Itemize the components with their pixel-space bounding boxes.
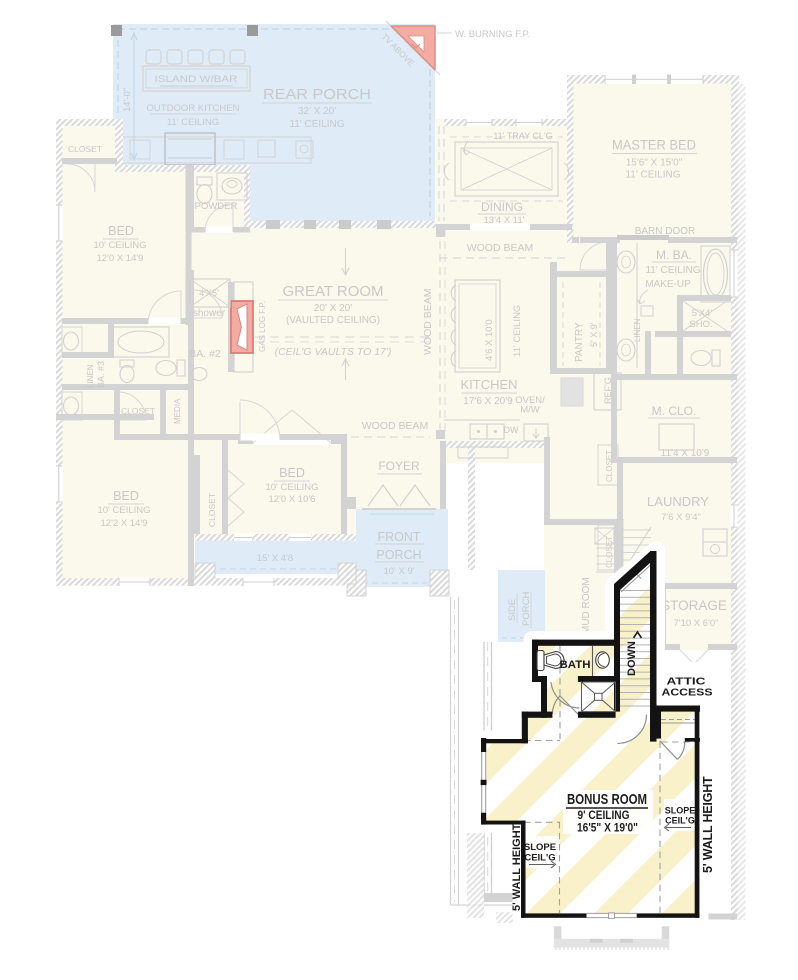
svg-text:BATH: BATH [560, 659, 591, 671]
svg-text:10' CEILING: 10' CEILING [265, 482, 318, 493]
svg-text:WOOD BEAM: WOOD BEAM [422, 288, 434, 355]
svg-text:ACCESS: ACCESS [662, 687, 713, 699]
svg-text:SHO.: SHO. [689, 319, 712, 330]
svg-text:PORCH: PORCH [376, 548, 421, 562]
svg-text:POWDER: POWDER [195, 201, 238, 212]
svg-text:M. CLO.: M. CLO. [652, 404, 697, 418]
svg-text:11' CEILING: 11' CEILING [167, 117, 219, 128]
svg-text:17'6 X 20'9: 17'6 X 20'9 [463, 396, 513, 407]
svg-text:15'6" X 15'0": 15'6" X 15'0" [626, 158, 683, 169]
svg-text:OUTDOOR KITCHEN: OUTDOOR KITCHEN [147, 103, 240, 114]
svg-text:ISLAND W/BAR: ISLAND W/BAR [155, 74, 239, 84]
svg-text:BED: BED [108, 224, 134, 238]
svg-text:CEIL'G: CEIL'G [665, 816, 695, 826]
svg-text:M/W: M/W [520, 405, 540, 416]
svg-text:MUD ROOM: MUD ROOM [581, 577, 592, 634]
svg-text:5' WALL HEIGHT: 5' WALL HEIGHT [701, 776, 715, 873]
svg-text:15' X 4'8: 15' X 4'8 [257, 553, 293, 564]
svg-text:LAUNDRY: LAUNDRY [647, 494, 709, 509]
svg-text:4'6 X 10'0: 4'6 X 10'0 [484, 319, 495, 361]
svg-text:10' CEILING: 10' CEILING [97, 505, 150, 516]
svg-text:BED: BED [279, 466, 305, 480]
svg-text:11' TRAY CL'G: 11' TRAY CL'G [493, 131, 552, 141]
svg-text:LINEN: LINEN [633, 318, 642, 342]
svg-text:SLOPE: SLOPE [665, 806, 696, 816]
svg-text:MEDIA: MEDIA [173, 398, 182, 424]
svg-text:12'2 X 14'9: 12'2 X 14'9 [101, 518, 148, 529]
svg-text:7'6 X 9'4": 7'6 X 9'4" [661, 512, 701, 523]
svg-text:13'4 X 11': 13'4 X 11' [484, 215, 525, 226]
svg-text:DOWN: DOWN [626, 641, 638, 676]
svg-text:FOYER: FOYER [378, 459, 420, 473]
svg-text:(VAULTED CEILING): (VAULTED CEILING) [286, 315, 380, 326]
svg-text:BA. #2: BA. #2 [189, 348, 221, 360]
svg-text:CLOSET: CLOSET [605, 450, 614, 482]
svg-text:W. BURNING F.P.: W. BURNING F.P. [455, 29, 530, 40]
svg-text:DINING: DINING [481, 200, 523, 214]
svg-text:11' CEILING: 11' CEILING [289, 119, 344, 130]
svg-text:STORAGE: STORAGE [661, 598, 727, 613]
svg-text:FRONT: FRONT [377, 530, 420, 544]
svg-text:4'X5': 4'X5' [199, 288, 219, 298]
svg-text:CLOSET: CLOSET [121, 406, 155, 416]
svg-text:CLOSET: CLOSET [207, 493, 217, 527]
svg-text:12'0 X 10'6: 12'0 X 10'6 [269, 494, 316, 505]
svg-text:SIDE: SIDE [507, 599, 518, 621]
svg-text:12'0 X 14'9: 12'0 X 14'9 [97, 253, 144, 264]
svg-text:PANTRY: PANTRY [574, 322, 585, 362]
svg-text:5' WALL HEIGHT: 5' WALL HEIGHT [511, 823, 523, 911]
svg-text:BONUS ROOM: BONUS ROOM [567, 791, 647, 808]
svg-text:10' X 9': 10' X 9' [383, 566, 414, 577]
svg-text:WOOD BEAM: WOOD BEAM [362, 420, 429, 432]
svg-text:11' CEILING: 11' CEILING [512, 305, 523, 357]
svg-text:WOOD BEAM: WOOD BEAM [467, 242, 534, 254]
svg-text:M. BA.: M. BA. [656, 248, 692, 262]
svg-text:14'-0": 14'-0" [122, 88, 133, 112]
svg-text:32' X 20': 32' X 20' [298, 106, 336, 117]
svg-text:16'5" X 19'0": 16'5" X 19'0" [577, 823, 638, 835]
svg-text:MASTER BED: MASTER BED [612, 137, 696, 153]
svg-text:GREAT ROOM: GREAT ROOM [282, 283, 383, 300]
svg-text:DW: DW [504, 425, 519, 435]
svg-text:KITCHEN: KITCHEN [460, 377, 517, 392]
svg-text:LINEN: LINEN [86, 364, 95, 388]
svg-text:9' CEILING: 9' CEILING [578, 810, 630, 822]
svg-text:MAKE-UP: MAKE-UP [645, 279, 691, 290]
svg-text:5' X 9': 5' X 9' [589, 322, 599, 347]
svg-text:7'10 X 6'0": 7'10 X 6'0" [673, 618, 718, 629]
svg-text:11' CEILING: 11' CEILING [625, 170, 680, 181]
svg-text:BA. #3: BA. #3 [96, 361, 106, 388]
svg-text:BED: BED [113, 489, 139, 503]
svg-text:CEIL'G: CEIL'G [524, 853, 555, 864]
svg-text:PORCH: PORCH [521, 592, 532, 626]
svg-text:(CEIL'G VAULTS TO 17'): (CEIL'G VAULTS TO 17') [275, 346, 392, 358]
svg-text:REAR PORCH: REAR PORCH [263, 86, 371, 103]
svg-text:CLOSET: CLOSET [68, 144, 102, 154]
svg-text:5'X4': 5'X4' [692, 308, 713, 319]
svg-text:10' CEILING: 10' CEILING [93, 240, 146, 251]
svg-text:SLOPE: SLOPE [524, 842, 556, 853]
svg-text:20' X 20': 20' X 20' [314, 303, 352, 314]
svg-text:11' CEILING: 11' CEILING [645, 265, 700, 276]
svg-text:GAS LOG F.P.: GAS LOG F.P. [258, 301, 267, 352]
